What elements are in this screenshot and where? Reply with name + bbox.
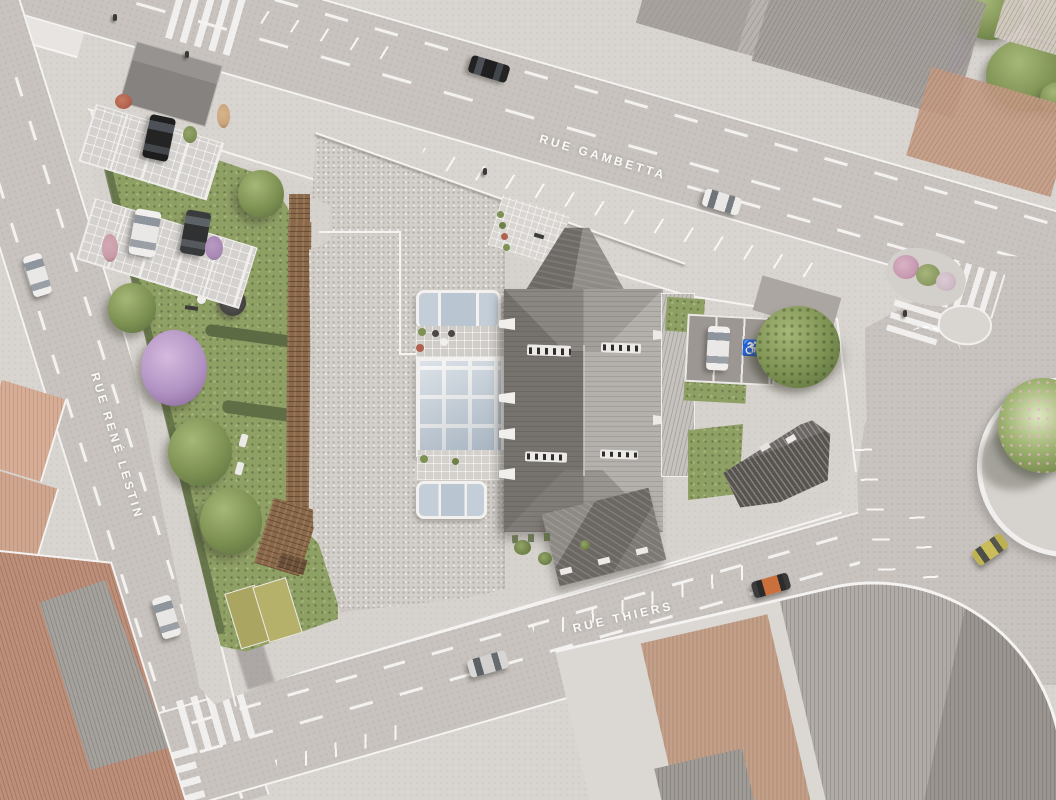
planter-green [503, 244, 510, 251]
flower-shrub [936, 272, 956, 291]
roof-ridge [583, 345, 585, 476]
plaza-shrub [514, 540, 531, 555]
parapet-line [399, 353, 417, 355]
garden-tree [238, 170, 284, 218]
planter-red [501, 233, 508, 240]
garden-tree [200, 488, 262, 554]
parapet-line [399, 231, 401, 355]
roof-window-row [525, 451, 567, 462]
shrub-green [183, 126, 197, 143]
shrub-purple [205, 236, 223, 260]
pedestrian [483, 168, 487, 175]
plaza-shrub [538, 552, 552, 565]
pedestrian [185, 51, 189, 58]
garden-tree [168, 418, 232, 486]
shrub-tan [217, 104, 230, 128]
planter-green [499, 222, 506, 229]
shrub-pink [102, 234, 118, 262]
skylight-grid [416, 357, 505, 457]
skylight-north [416, 290, 501, 330]
roof-window-row [601, 342, 641, 353]
parapet-line [319, 231, 401, 233]
planter-green [418, 328, 426, 336]
site-plan-scene: ♿ RUE GAMBETTA RUE RENÉ LESTIN RU [0, 0, 1056, 800]
planter-green [452, 458, 459, 465]
tree-east-large [756, 306, 840, 388]
garden-tree [108, 283, 156, 333]
parked-car-white-accessible [706, 326, 730, 371]
pedestrian [113, 14, 117, 21]
garden-tree-purple [141, 330, 207, 406]
planter-green [497, 211, 504, 218]
roof-window-row [527, 344, 571, 357]
roof-terrace-south [417, 450, 505, 480]
wood-deck [289, 194, 310, 224]
skylight-south [416, 481, 487, 519]
wood-deck [286, 222, 312, 527]
planter-green [420, 455, 428, 463]
cafe-table [440, 338, 448, 346]
pedestrian [903, 310, 907, 317]
cafe-chair [432, 330, 439, 337]
plaza-shrub [580, 540, 590, 550]
planter-red [416, 344, 424, 352]
shrub-red [115, 94, 132, 109]
roof-window-row [600, 449, 638, 459]
cafe-chair [448, 330, 455, 337]
